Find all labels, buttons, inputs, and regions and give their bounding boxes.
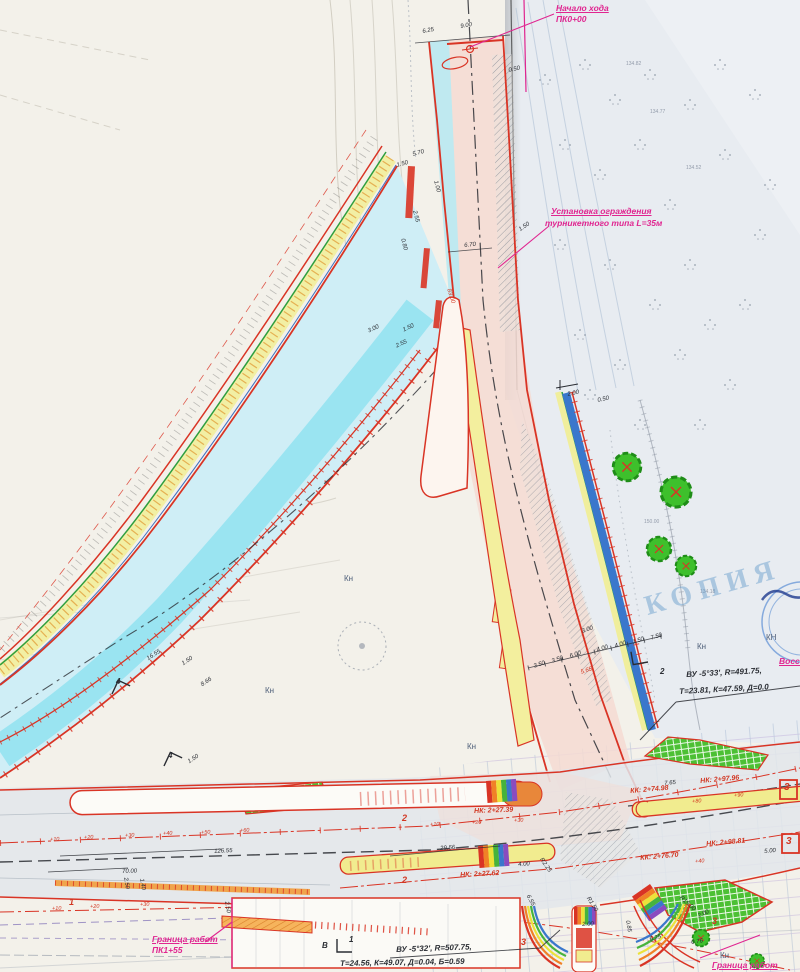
site-plan-drawing xyxy=(0,0,800,972)
scanned-road-plan: Начало ходаПК0+00Установка ограждениятур… xyxy=(0,0,800,972)
